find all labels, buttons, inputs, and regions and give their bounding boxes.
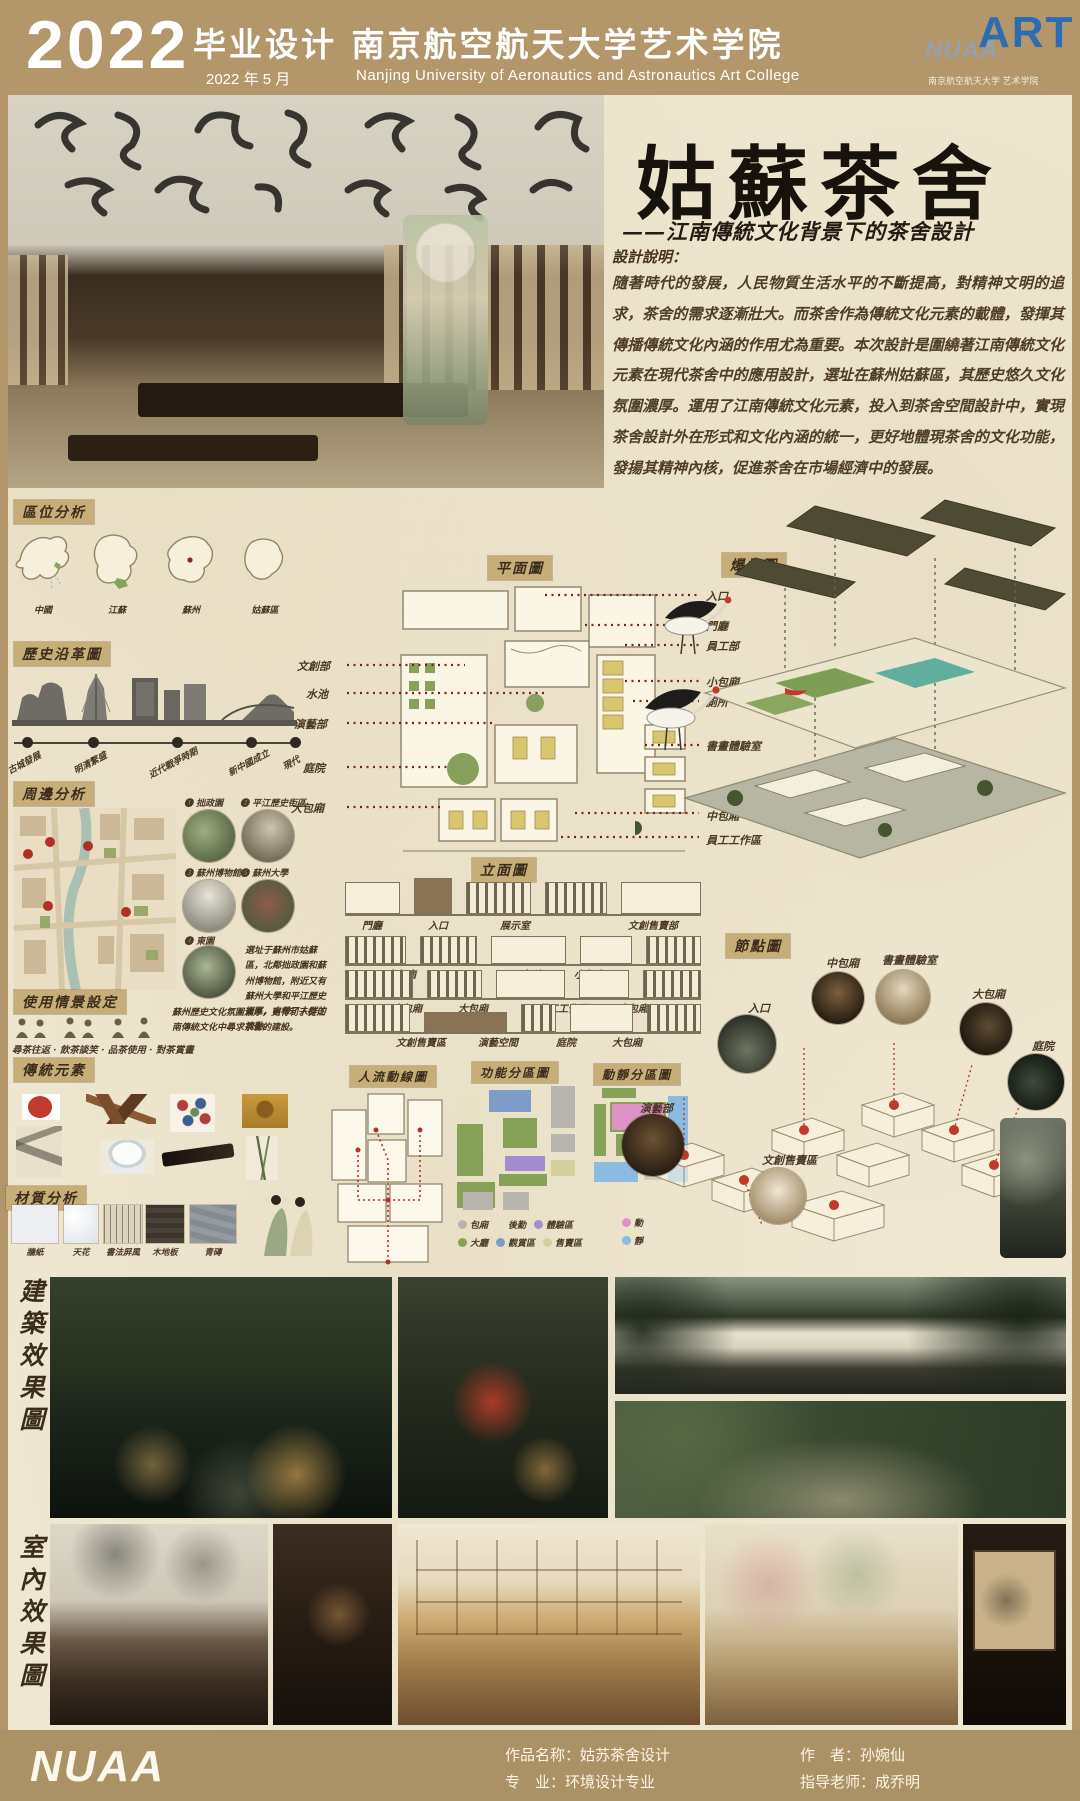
legend-entry: 觀賞區: [496, 1239, 535, 1249]
credit-work: 作品名称：姑苏茶舍设计: [505, 1744, 670, 1765]
interior-renders-label: 室內效果圖: [12, 1534, 48, 1734]
spot-photo-university: [242, 880, 294, 932]
china-map-outline: [10, 528, 76, 598]
interior-render-dark-tearoom: [273, 1524, 392, 1725]
suzhou-map-outline: [158, 528, 224, 598]
header-date: 2022 年 5 月: [206, 68, 290, 89]
credit-work-value: 姑苏茶舍设计: [580, 1747, 670, 1764]
node-photo-calligraphy-room: [876, 970, 930, 1024]
interior-render-mural-lounge: [705, 1524, 958, 1725]
rockery-photo: [1000, 1118, 1066, 1258]
function-zoning-diagram: [455, 1086, 587, 1212]
node-diagram-title: 節點圖: [726, 934, 790, 958]
material-ceiling: [64, 1205, 98, 1243]
credit-author-label: 作 者：: [800, 1747, 860, 1764]
material-grey-brick: [190, 1205, 236, 1243]
arch-render-facade: [615, 1277, 1066, 1394]
material-label: 木地板: [146, 1246, 184, 1258]
node-label: 中包廂: [826, 955, 859, 971]
plan-label-left: 文創部: [297, 658, 330, 674]
scenario-title: 使用情景設定: [14, 990, 126, 1014]
interior-render-teashop: [398, 1524, 700, 1725]
material-wood-floor: [146, 1205, 184, 1243]
history-title: 歷史沿革圖: [14, 642, 110, 666]
footer-band: NUAA 作品名称：姑苏茶舍设计 专 业：环境设计专业 作 者：孙婉仙 指导老师…: [0, 1730, 1080, 1801]
element-woodcarving: [86, 1094, 156, 1124]
scenario-figures-art: [12, 1014, 162, 1040]
header-title-cn: 毕业设计 南京航空航天大学艺术学院: [193, 18, 784, 66]
element-buddha-painting: [242, 1094, 288, 1128]
circulation-diagram-title: 人流動線圖: [350, 1066, 436, 1087]
material-label: 書法屏風: [104, 1246, 142, 1258]
legend-color-dot: [458, 1220, 467, 1229]
surroundings-title: 周邊分析: [14, 782, 94, 806]
scenario-caption: 尋茶往返 · 飲茶談笑 · 品茶使用 · 對茶賞畫: [12, 1042, 194, 1056]
location-maps: 中國 江蘇 蘇州 姑蘇區: [10, 528, 298, 624]
elevation-row-3: [345, 972, 701, 1000]
legend-entry: 售賣區: [543, 1239, 582, 1249]
function-legend: 包廂後勤體驗區 大廳觀賞區售賣區: [458, 1216, 608, 1252]
map-label: 中國: [10, 603, 76, 616]
legend-entry: 後勤: [496, 1221, 526, 1231]
element-bamboo: [246, 1136, 278, 1180]
elevation-label: 庭院: [556, 1034, 576, 1049]
timeline-dot: [246, 737, 257, 748]
credit-author-value: 孙婉仙: [860, 1747, 905, 1764]
floor-plan-title: 平面圖: [488, 556, 552, 580]
hero-window-left: [8, 255, 68, 385]
node-photo-mid-room: [812, 972, 864, 1024]
elevation-label: 演藝空間: [478, 1034, 518, 1049]
elevation-label: 入口: [428, 917, 448, 932]
circulation-diagram: [328, 1090, 448, 1266]
hero-figure-painting: [403, 215, 488, 425]
location-analysis-title: 區位分析: [14, 500, 94, 524]
legend-color-dot: [496, 1220, 505, 1229]
node-photo-shop: [750, 1168, 806, 1224]
design-desc-text: 隨著時代的發展，人民物質生活水平的不斷提高，對精神文明的追求，茶舍的需求逐漸壯大…: [612, 268, 1064, 483]
poster-subtitle: ——江南傳統文化背景下的茶舍設計: [622, 216, 974, 246]
credit-author: 作 者：孙婉仙: [800, 1744, 905, 1765]
credit-advisor-value: 成乔明: [875, 1774, 920, 1791]
node-photo-courtyard: [1008, 1054, 1064, 1110]
surroundings-street-map: [14, 808, 176, 990]
credit-advisor: 指导老师：成乔明: [800, 1771, 920, 1792]
arch-render-courtyard-night: [50, 1277, 392, 1518]
spot-label: ❶ 拙政園: [184, 796, 223, 809]
element-seal-stamp: [28, 1096, 52, 1118]
credit-work-label: 作品名称：: [505, 1747, 580, 1764]
logo-caption: 南京航空航天大学 艺术学院: [928, 74, 1039, 87]
spot-photo-zhuozhengyuan: [183, 810, 235, 862]
nuaa-footer-logo: NUAA: [30, 1742, 165, 1792]
material-wallpaper: [12, 1205, 58, 1243]
elevation-row-4: [345, 1006, 701, 1034]
legend-color-dot: [496, 1238, 505, 1247]
spot-photo-pingjiang: [242, 810, 294, 862]
header-title-en: Nanjing University of Aeronautics and As…: [356, 67, 800, 84]
surroundings-note-2: 蘇州歷史文化氛圍濃厚，更有利于從江南傳統文化中尋求茶舍的建設。: [172, 1006, 332, 1037]
art-logo-text: ART: [978, 8, 1074, 58]
hero-table-front: [68, 435, 318, 461]
hero-render-photo: [8, 95, 604, 488]
elevation-title: 立面圖: [472, 858, 536, 882]
legend-entry: 體驗區: [534, 1221, 573, 1231]
elevation-label: 展示室: [500, 917, 530, 932]
credit-major: 专 业：环境设计专业: [505, 1771, 655, 1792]
map-label: 江蘇: [84, 603, 150, 616]
map-label: 蘇州: [158, 603, 224, 616]
header-year: 2022: [26, 6, 189, 84]
credit-major-label: 专 业：: [505, 1774, 565, 1791]
function-diagram-title: 功能分區圖: [472, 1062, 558, 1083]
arch-render-maple-courtyard: [398, 1277, 608, 1518]
node-photo-entrance: [718, 1015, 776, 1073]
elevation-label: 門廳: [362, 917, 382, 932]
elements-title: 傳統元素: [14, 1058, 94, 1082]
material-label: 牆紙: [12, 1246, 58, 1258]
history-skyline-image: [12, 668, 297, 726]
plan-label-left: 大包廂: [291, 800, 324, 816]
node-photo-stage: [622, 1114, 684, 1176]
jiangsu-map-outline: [84, 528, 150, 598]
spot-photo-dongyuan: [183, 946, 235, 998]
credit-advisor-label: 指导老师：: [800, 1774, 875, 1791]
node-label: 書畫體驗室: [882, 952, 937, 968]
tea-shelves: [416, 1540, 682, 1634]
hanfu-figures-art: [256, 1192, 320, 1258]
node-label: 文創售賣區: [762, 1152, 817, 1168]
node-label: 大包廂: [972, 986, 1005, 1002]
map-label: 姑蘇區: [232, 603, 298, 616]
arch-render-garden-path: [615, 1401, 1066, 1518]
legend-entry: 大廳: [458, 1239, 488, 1249]
spot-label: ❺ 蘇州大學: [240, 866, 288, 879]
legend-entry: 包廂: [458, 1221, 488, 1231]
material-label: 天花: [64, 1246, 98, 1258]
node-photo-large-room: [960, 1003, 1012, 1055]
timeline-dot: [22, 737, 33, 748]
element-floral-pattern: [170, 1094, 215, 1132]
elevation-row-2: [345, 938, 701, 966]
arch-renders-label: 建築效果圖: [12, 1278, 48, 1478]
timeline-dot: [88, 737, 99, 748]
design-desc-title: 設計說明：: [612, 246, 687, 267]
timeline-dot: [172, 737, 183, 748]
poster: 2022 毕业设计 南京航空航天大学艺术学院 2022 年 5 月 Nanjin…: [0, 0, 1080, 1801]
wall-painting: [975, 1552, 1053, 1648]
plan-label-left: 演藝部: [294, 716, 327, 732]
node-label: 入口: [748, 1000, 770, 1016]
timeline-dot: [290, 737, 301, 748]
gusu-district-outline: [232, 528, 298, 598]
node-label: 庭院: [1032, 1038, 1054, 1054]
exploded-axon-drawing: [635, 498, 1071, 942]
calligraphy-ceiling-art: [8, 95, 604, 245]
elevation-label: 文創售賣區: [396, 1034, 446, 1049]
legend-color-dot: [534, 1220, 543, 1229]
plan-label-left: 庭院: [303, 760, 325, 776]
interior-render-mural-room: [50, 1524, 268, 1725]
interior-render-study: [963, 1524, 1066, 1725]
material-calligraphy-screen: [104, 1205, 142, 1243]
spot-photo-museum: [183, 880, 235, 932]
legend-color-dot: [458, 1238, 467, 1247]
spot-label: ❸ 蘇州博物館: [184, 866, 241, 879]
element-gaiwan-teaset: [100, 1140, 154, 1174]
plan-label-left: 水池: [306, 686, 328, 702]
legend-color-dot: [543, 1238, 552, 1247]
element-ink-painting: [16, 1126, 62, 1178]
material-label: 青磚: [190, 1246, 236, 1258]
header-band: 2022 毕业设计 南京航空航天大学艺术学院 2022 年 5 月 Nanjin…: [0, 0, 1080, 95]
credit-major-value: 环境设计专业: [565, 1774, 655, 1791]
